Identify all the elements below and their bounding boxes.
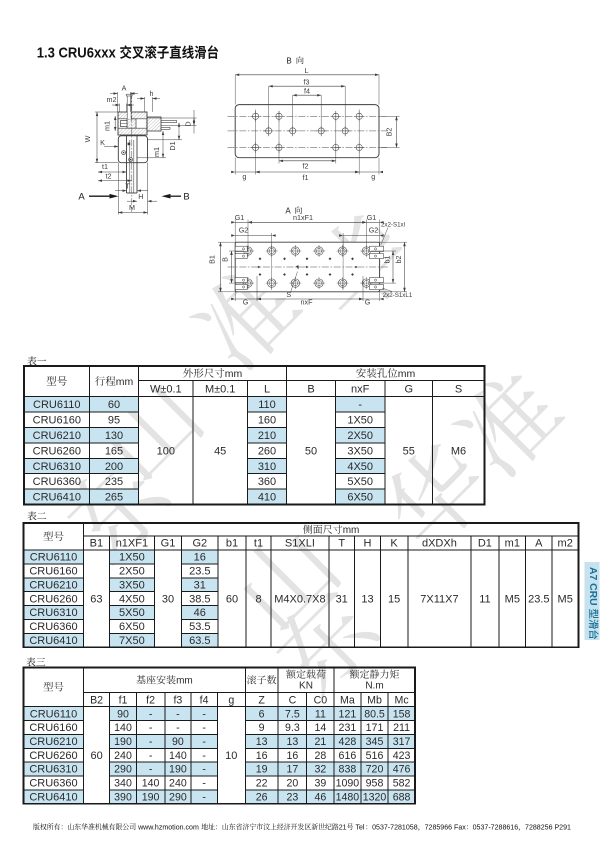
svg-text:A: A xyxy=(78,192,85,203)
svg-text:CRU6210: CRU6210 xyxy=(29,736,77,748)
svg-text:-: - xyxy=(149,764,153,776)
svg-text:b2: b2 xyxy=(394,256,403,264)
svg-text:6X50: 6X50 xyxy=(119,621,145,633)
svg-text:582: 582 xyxy=(393,778,411,790)
svg-text:n1xF1: n1xF1 xyxy=(293,213,313,222)
svg-text:260: 260 xyxy=(258,445,276,457)
svg-text:171: 171 xyxy=(366,722,384,734)
svg-text:CRU6310: CRU6310 xyxy=(29,607,77,619)
svg-text:CRU6110: CRU6110 xyxy=(33,399,81,411)
svg-text:M4X0.7X8: M4X0.7X8 xyxy=(274,593,325,605)
svg-text:4X50: 4X50 xyxy=(119,593,145,605)
svg-text:-: - xyxy=(149,708,153,720)
svg-text:39: 39 xyxy=(315,778,327,790)
svg-text:21: 21 xyxy=(339,822,347,831)
svg-text:1X50: 1X50 xyxy=(347,414,373,426)
svg-text:T: T xyxy=(125,182,130,191)
svg-text:1X50: 1X50 xyxy=(119,552,145,564)
svg-text:m2: m2 xyxy=(107,95,117,104)
svg-text:C0: C0 xyxy=(314,694,328,706)
svg-text:-: - xyxy=(202,764,206,776)
svg-text:1.3 CRU6xxx: 1.3 CRU6xxx xyxy=(37,44,116,61)
svg-text:32: 32 xyxy=(315,764,327,776)
svg-text:5X50: 5X50 xyxy=(347,476,373,488)
svg-text:M5: M5 xyxy=(558,593,573,605)
svg-text:360: 360 xyxy=(258,476,276,488)
svg-text:f1: f1 xyxy=(303,173,309,182)
svg-text:23.5: 23.5 xyxy=(189,566,210,578)
svg-text:G: G xyxy=(405,383,414,395)
svg-text:G2: G2 xyxy=(239,226,249,235)
svg-text:616: 616 xyxy=(339,750,357,762)
svg-text:f2: f2 xyxy=(146,694,155,706)
svg-text:f4: f4 xyxy=(304,86,310,95)
svg-text:50: 50 xyxy=(305,445,317,457)
svg-text:130: 130 xyxy=(105,430,123,442)
svg-text:11: 11 xyxy=(315,708,326,720)
svg-text:31: 31 xyxy=(194,580,206,592)
svg-text:14: 14 xyxy=(315,722,327,734)
svg-text:CRU6310: CRU6310 xyxy=(29,764,77,776)
svg-text:190: 190 xyxy=(114,736,132,748)
svg-text:13: 13 xyxy=(256,736,268,748)
svg-text:f2: f2 xyxy=(303,161,309,170)
svg-text:CRU6210: CRU6210 xyxy=(29,580,77,592)
svg-text:b1: b1 xyxy=(226,538,238,550)
svg-text:340: 340 xyxy=(114,778,132,790)
svg-text:7X50: 7X50 xyxy=(119,635,145,647)
svg-text:CRU6160: CRU6160 xyxy=(33,414,81,426)
svg-text:16: 16 xyxy=(256,750,268,762)
svg-text:CRU6360: CRU6360 xyxy=(29,778,77,790)
svg-text:G2: G2 xyxy=(369,226,379,235)
svg-text:mm: mm xyxy=(398,368,416,380)
svg-text:55: 55 xyxy=(403,445,415,457)
svg-text:b1: b1 xyxy=(383,256,392,264)
svg-text:6X50: 6X50 xyxy=(347,492,373,504)
svg-text:688: 688 xyxy=(393,791,411,803)
svg-text:CRU6160: CRU6160 xyxy=(29,722,77,734)
svg-text:D1: D1 xyxy=(168,141,177,150)
svg-text:46: 46 xyxy=(315,791,327,803)
svg-text:W: W xyxy=(83,135,92,142)
svg-text:L: L xyxy=(305,66,309,75)
svg-text:140: 140 xyxy=(114,722,132,734)
svg-text:45: 45 xyxy=(214,445,226,457)
svg-text:13: 13 xyxy=(361,593,373,605)
svg-text:CRU6360: CRU6360 xyxy=(29,621,77,633)
svg-text:m1: m1 xyxy=(103,121,112,131)
svg-text:235: 235 xyxy=(105,476,123,488)
svg-text:T: T xyxy=(338,538,345,550)
svg-text:7285966 Fax: 7285966 Fax xyxy=(425,822,467,831)
svg-text:158: 158 xyxy=(393,708,411,720)
svg-text:265: 265 xyxy=(105,492,123,504)
svg-text:g: g xyxy=(242,172,246,181)
svg-text:23.5: 23.5 xyxy=(528,593,549,605)
svg-text:H: H xyxy=(364,538,372,550)
svg-text:M±0.1: M±0.1 xyxy=(205,383,236,395)
svg-text:2X50: 2X50 xyxy=(119,566,145,578)
svg-text:B2: B2 xyxy=(385,128,394,137)
svg-text:-: - xyxy=(202,750,206,762)
svg-text:B: B xyxy=(307,383,314,395)
svg-text:53.5: 53.5 xyxy=(189,621,210,633)
svg-text:-: - xyxy=(176,708,180,720)
svg-text:-: - xyxy=(202,736,206,748)
svg-text:CRU6260: CRU6260 xyxy=(33,445,81,457)
svg-text:5X50: 5X50 xyxy=(119,607,145,619)
svg-text:f1: f1 xyxy=(119,694,128,706)
svg-text:-: - xyxy=(149,722,153,734)
svg-text:63: 63 xyxy=(90,593,102,605)
svg-text:190: 190 xyxy=(169,764,187,776)
svg-text:C: C xyxy=(289,694,297,706)
svg-text:3X50: 3X50 xyxy=(347,445,373,457)
svg-text:140: 140 xyxy=(169,750,187,762)
svg-text:63.5: 63.5 xyxy=(189,635,210,647)
svg-text:720: 720 xyxy=(366,764,384,776)
svg-text:7288256 P291: 7288256 P291 xyxy=(525,822,571,831)
svg-text:G1: G1 xyxy=(161,538,176,550)
svg-text:1090: 1090 xyxy=(336,778,360,790)
svg-text:410: 410 xyxy=(258,492,276,504)
svg-text:121: 121 xyxy=(339,708,357,720)
svg-text:CRU6110: CRU6110 xyxy=(30,552,78,564)
svg-text:160: 160 xyxy=(258,414,276,426)
svg-text:9.3: 9.3 xyxy=(285,722,300,734)
svg-text:f3: f3 xyxy=(304,77,310,86)
svg-text:n1XF1: n1XF1 xyxy=(116,538,148,550)
svg-text:8: 8 xyxy=(255,593,261,605)
svg-text:80.5: 80.5 xyxy=(364,708,385,720)
svg-text:Ma: Ma xyxy=(340,694,355,706)
svg-text:231: 231 xyxy=(339,722,357,734)
svg-text:M: M xyxy=(129,203,135,212)
svg-text:310: 310 xyxy=(258,461,276,473)
svg-text:mm: mm xyxy=(116,376,134,388)
svg-text:-: - xyxy=(149,736,153,748)
svg-text:nxF: nxF xyxy=(351,383,370,395)
svg-text:W±0.1: W±0.1 xyxy=(150,383,182,395)
svg-text:1320: 1320 xyxy=(363,791,387,803)
svg-text:D: D xyxy=(183,121,192,126)
svg-text:31: 31 xyxy=(336,593,348,605)
svg-text:200: 200 xyxy=(105,461,123,473)
svg-text:M6: M6 xyxy=(451,445,466,457)
svg-text:m1: m1 xyxy=(505,538,520,550)
svg-text:L: L xyxy=(264,383,270,395)
svg-text:S1XLI: S1XLI xyxy=(285,538,315,550)
svg-text:mm: mm xyxy=(343,525,360,536)
svg-text:423: 423 xyxy=(393,750,411,762)
svg-text:G1: G1 xyxy=(367,213,377,222)
svg-text:B: B xyxy=(286,56,291,65)
svg-text:B1: B1 xyxy=(208,255,217,264)
svg-text:26: 26 xyxy=(256,791,268,803)
svg-text:22: 22 xyxy=(256,778,268,790)
svg-text:0537-7288616: 0537-7288616 xyxy=(473,822,519,831)
svg-text:m1: m1 xyxy=(152,147,161,157)
svg-text:958: 958 xyxy=(366,778,384,790)
svg-text:100: 100 xyxy=(157,445,175,457)
svg-text:13: 13 xyxy=(287,736,299,748)
svg-text:30: 30 xyxy=(162,593,174,605)
svg-text:B1: B1 xyxy=(90,538,103,550)
svg-text:CRU6210: CRU6210 xyxy=(33,430,81,442)
svg-text:-: - xyxy=(202,722,206,734)
svg-text:m2: m2 xyxy=(558,538,573,550)
svg-text:Mb: Mb xyxy=(367,694,382,706)
svg-text:t1: t1 xyxy=(254,538,263,550)
svg-text:D1: D1 xyxy=(478,538,492,550)
svg-text:211: 211 xyxy=(393,722,410,734)
svg-text:-: - xyxy=(202,778,206,790)
svg-text:2X50: 2X50 xyxy=(347,430,373,442)
svg-text:CRU6110: CRU6110 xyxy=(30,708,78,720)
svg-text:Mc: Mc xyxy=(395,694,410,706)
svg-text:19: 19 xyxy=(256,764,268,776)
svg-text:110: 110 xyxy=(258,399,276,411)
svg-text:A: A xyxy=(285,206,291,215)
svg-text:2x2-S1xl: 2x2-S1xl xyxy=(381,222,405,229)
svg-text:17: 17 xyxy=(287,764,299,776)
svg-text:-: - xyxy=(358,399,362,411)
svg-text:345: 345 xyxy=(366,736,384,748)
svg-text:2x2-S1xL1: 2x2-S1xL1 xyxy=(383,292,413,299)
svg-text:Tel: Tel xyxy=(355,822,364,831)
svg-text:90: 90 xyxy=(172,736,184,748)
svg-text:60: 60 xyxy=(108,399,120,411)
svg-text:3X50: 3X50 xyxy=(119,580,145,592)
svg-text:240: 240 xyxy=(114,750,132,762)
svg-text:G1: G1 xyxy=(235,213,245,222)
svg-text:f3: f3 xyxy=(173,694,182,706)
svg-text:N.m: N.m xyxy=(365,680,383,691)
svg-text:317: 317 xyxy=(393,736,411,748)
svg-text:4X50: 4X50 xyxy=(347,461,373,473)
svg-text:290: 290 xyxy=(114,764,132,776)
svg-text:476: 476 xyxy=(393,764,411,776)
svg-text:-: - xyxy=(202,708,206,720)
svg-text:90: 90 xyxy=(117,708,129,720)
svg-text:g: g xyxy=(228,694,234,706)
svg-text:h: h xyxy=(150,89,154,98)
svg-text:A7 CRU: A7 CRU xyxy=(587,567,598,606)
svg-text:-: - xyxy=(176,722,180,734)
svg-text:0537-7281058: 0537-7281058 xyxy=(372,822,418,831)
svg-text:190: 190 xyxy=(142,791,160,803)
svg-text:mm: mm xyxy=(225,368,243,380)
svg-text:t2: t2 xyxy=(106,172,112,181)
svg-text:t1: t1 xyxy=(102,162,108,171)
svg-text:11: 11 xyxy=(479,593,490,605)
svg-text:60: 60 xyxy=(90,750,102,762)
svg-text:38.5: 38.5 xyxy=(189,593,210,605)
svg-text:16: 16 xyxy=(194,552,206,564)
svg-text:g: g xyxy=(371,172,375,181)
svg-text:60: 60 xyxy=(226,593,238,605)
svg-text:1480: 1480 xyxy=(336,791,360,803)
svg-text:290: 290 xyxy=(169,791,187,803)
svg-text:15: 15 xyxy=(388,593,400,605)
svg-text:CRU6410: CRU6410 xyxy=(29,791,77,803)
svg-text:165: 165 xyxy=(105,445,123,457)
svg-text:CRU6160: CRU6160 xyxy=(29,566,77,578)
svg-text:838: 838 xyxy=(339,764,357,776)
svg-text:CRU6260: CRU6260 xyxy=(29,593,77,605)
svg-text:G2: G2 xyxy=(192,538,207,550)
svg-text:B: B xyxy=(183,192,189,203)
svg-text:K: K xyxy=(100,138,105,147)
svg-text:6: 6 xyxy=(259,708,265,720)
svg-text:7.5: 7.5 xyxy=(285,708,300,720)
svg-text:7X11X7: 7X11X7 xyxy=(420,593,458,605)
svg-text:10: 10 xyxy=(225,750,237,762)
svg-text:16: 16 xyxy=(287,750,299,762)
svg-text:CRU6310: CRU6310 xyxy=(33,461,81,473)
svg-text:H: H xyxy=(138,192,143,201)
svg-text:210: 210 xyxy=(258,430,276,442)
svg-text:M5: M5 xyxy=(505,593,520,605)
svg-text:240: 240 xyxy=(169,778,187,790)
svg-text:46: 46 xyxy=(194,607,206,619)
svg-text:A: A xyxy=(535,538,543,550)
svg-text:140: 140 xyxy=(142,778,160,790)
svg-text:CRU6410: CRU6410 xyxy=(33,492,81,504)
svg-text:B2: B2 xyxy=(90,694,103,706)
svg-text:Z: Z xyxy=(258,694,265,706)
svg-text:KN: KN xyxy=(299,680,313,691)
svg-text:www.hzmotion.com: www.hzmotion.com xyxy=(137,822,199,831)
svg-text:S: S xyxy=(455,383,462,395)
svg-text:28: 28 xyxy=(315,750,327,762)
svg-text:23: 23 xyxy=(287,791,299,803)
svg-text:95: 95 xyxy=(108,414,120,426)
svg-text:20: 20 xyxy=(287,778,299,790)
svg-text:mm: mm xyxy=(176,676,193,687)
svg-text:CRU6260: CRU6260 xyxy=(29,750,77,762)
svg-text:-: - xyxy=(202,791,206,803)
svg-text:B: B xyxy=(220,257,229,262)
svg-text:K: K xyxy=(390,538,398,550)
svg-text:21: 21 xyxy=(315,736,327,748)
svg-text:428: 428 xyxy=(339,736,357,748)
svg-text:A: A xyxy=(122,83,127,92)
svg-text:CRU6410: CRU6410 xyxy=(29,635,77,647)
svg-text:-: - xyxy=(149,750,153,762)
svg-text:f4: f4 xyxy=(200,694,209,706)
svg-text:516: 516 xyxy=(366,750,384,762)
svg-text:9: 9 xyxy=(259,722,265,734)
svg-text:dXDXh: dXDXh xyxy=(422,538,457,550)
svg-text:CRU6360: CRU6360 xyxy=(33,476,81,488)
svg-text:390: 390 xyxy=(114,791,132,803)
